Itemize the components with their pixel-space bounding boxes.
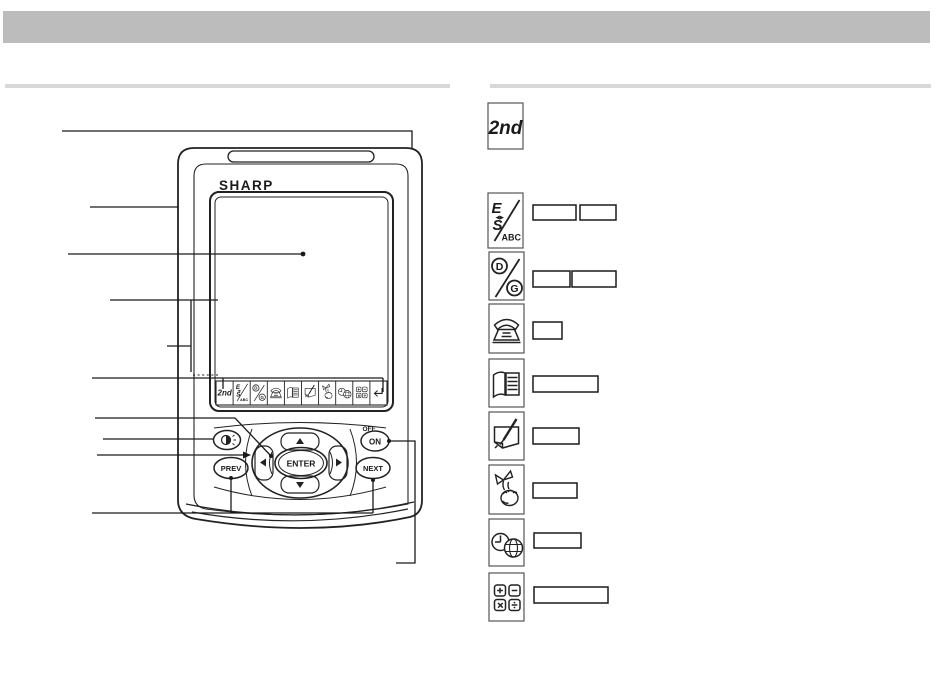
legend-blank-box <box>533 271 570 287</box>
legend-row-world-clock <box>489 519 581 566</box>
cursor-pad: ENTER <box>252 428 348 498</box>
legend-blank-box <box>533 376 598 392</box>
legend-blank-box <box>572 271 616 287</box>
callout-display-dot <box>301 252 306 257</box>
prev-key-label: PREV <box>221 464 241 473</box>
on-key: OFF ON <box>361 426 389 451</box>
down-arrow-icon <box>296 482 304 488</box>
callout-next-dot <box>371 478 375 482</box>
touch-key-organizer <box>288 388 299 398</box>
backlight-icon <box>222 435 237 445</box>
callout-prev-dot <box>229 476 233 480</box>
top-cover-strip <box>228 151 374 162</box>
page-artwork: 2nd E ◀▶ S ABC D G <box>0 0 936 682</box>
next-key-label: NEXT <box>363 464 383 473</box>
legend-keybox <box>489 465 524 514</box>
legend-blank-box <box>533 428 579 444</box>
legend-row-organizer <box>489 359 598 407</box>
callout-enter-key <box>95 418 271 456</box>
callout-cursor-arrowhead <box>243 452 251 459</box>
legend-row-phone <box>489 304 562 353</box>
prev-key: PREV <box>214 458 248 479</box>
second-function-key-icon <box>488 118 523 139</box>
right-arrow-icon <box>336 459 342 467</box>
header-bar <box>3 11 930 43</box>
on-key-label: ON <box>369 438 381 447</box>
legend-row-language <box>488 193 616 248</box>
touch-key-todo <box>323 384 332 398</box>
legend-keybox <box>489 573 524 621</box>
legend-blank-box <box>533 322 562 339</box>
legend-keybox <box>489 304 524 353</box>
backlight-key <box>214 431 241 450</box>
manual-page: 2nd E ◀▶ S ABC D G <box>0 0 936 682</box>
next-key: NEXT <box>356 458 390 479</box>
touch-key-calculator <box>356 387 367 398</box>
legend-blank-box <box>533 205 576 220</box>
callout-on-dot <box>387 439 391 443</box>
legend-blank-box <box>534 533 581 548</box>
callout-top-cover <box>62 131 412 148</box>
legend-row-calculator <box>489 573 608 621</box>
touch-key-memo <box>305 385 315 397</box>
screen-frame-inner <box>215 197 388 407</box>
section-rule-left <box>5 84 450 88</box>
touch-key-date-format <box>253 385 266 401</box>
legend-blank-box <box>534 587 608 603</box>
touch-key-2nd <box>217 389 232 398</box>
callout-on-key <box>389 441 415 563</box>
left-arrow-icon <box>260 459 266 467</box>
device-illustration: SHARP <box>178 148 422 528</box>
brand-logo: SHARP <box>219 178 274 193</box>
legend-blank-box <box>580 205 616 220</box>
touch-key-language <box>236 384 249 402</box>
touch-icon-row <box>216 381 387 405</box>
legend-row-memo <box>489 412 579 460</box>
callout-prev-next-keys <box>92 478 373 513</box>
callout-enter-dot <box>269 454 273 458</box>
up-arrow-icon <box>296 438 304 444</box>
touch-key-enter <box>374 388 382 396</box>
enter-key: ENTER <box>275 448 327 479</box>
touch-key-world-clock <box>338 388 351 398</box>
key-legend <box>488 103 616 621</box>
callout-lines <box>62 131 415 563</box>
legend-row-todo <box>489 465 577 514</box>
legend-row-date-format <box>489 252 616 300</box>
enter-key-label: ENTER <box>287 459 316 469</box>
legend-row-2nd <box>488 103 523 149</box>
legend-blank-box <box>533 483 577 498</box>
section-rule-right <box>490 84 931 88</box>
touch-key-phone <box>270 388 282 398</box>
